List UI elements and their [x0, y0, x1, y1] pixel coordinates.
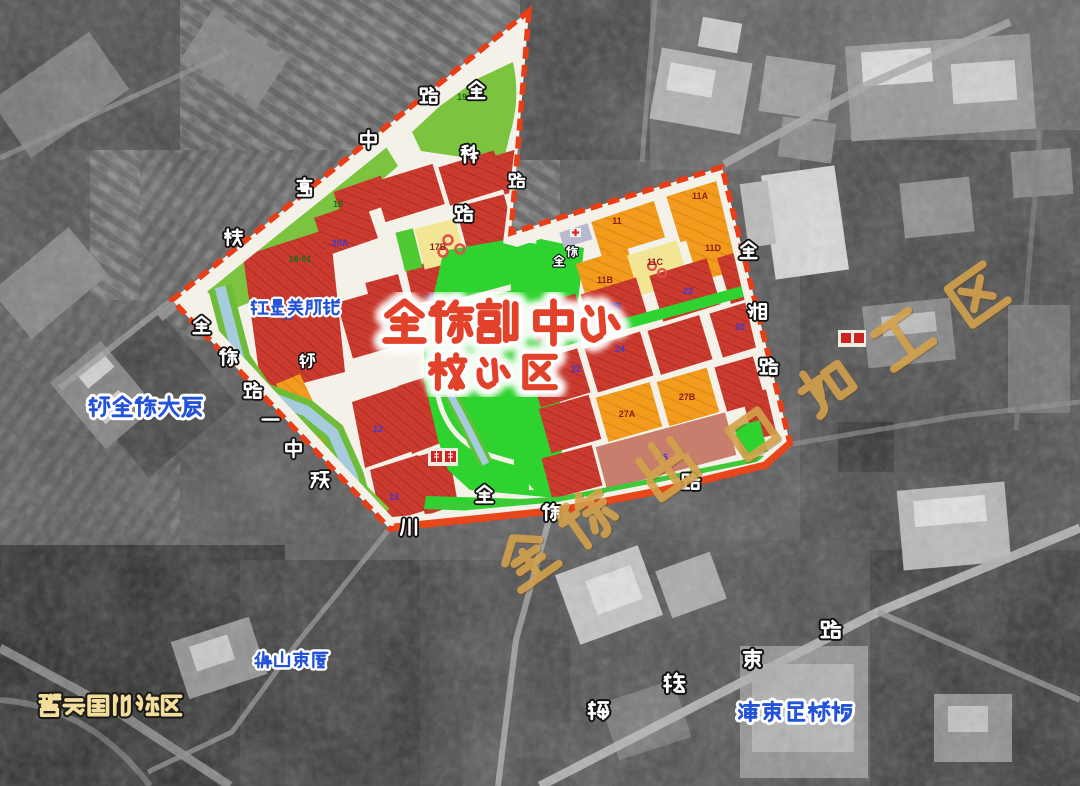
- svg-text:24: 24: [615, 344, 625, 354]
- svg-text:27A: 27A: [619, 409, 636, 419]
- svg-text:11D: 11D: [705, 243, 722, 253]
- svg-text:20A: 20A: [332, 238, 349, 248]
- svg-text:22: 22: [571, 364, 581, 374]
- svg-text:18-01: 18-01: [288, 254, 311, 264]
- svg-text:27B: 27B: [679, 392, 696, 402]
- svg-text:11A: 11A: [692, 191, 709, 201]
- svg-text:18: 18: [333, 199, 343, 209]
- svg-text:25: 25: [735, 322, 745, 332]
- svg-text:19: 19: [457, 92, 467, 102]
- svg-text:17B: 17B: [430, 242, 447, 252]
- svg-text:11C: 11C: [647, 257, 664, 267]
- svg-text:12: 12: [373, 424, 383, 434]
- svg-text:13: 13: [389, 492, 399, 502]
- svg-text:23: 23: [683, 286, 693, 296]
- svg-text:11B: 11B: [597, 275, 614, 285]
- svg-text:11: 11: [612, 216, 622, 226]
